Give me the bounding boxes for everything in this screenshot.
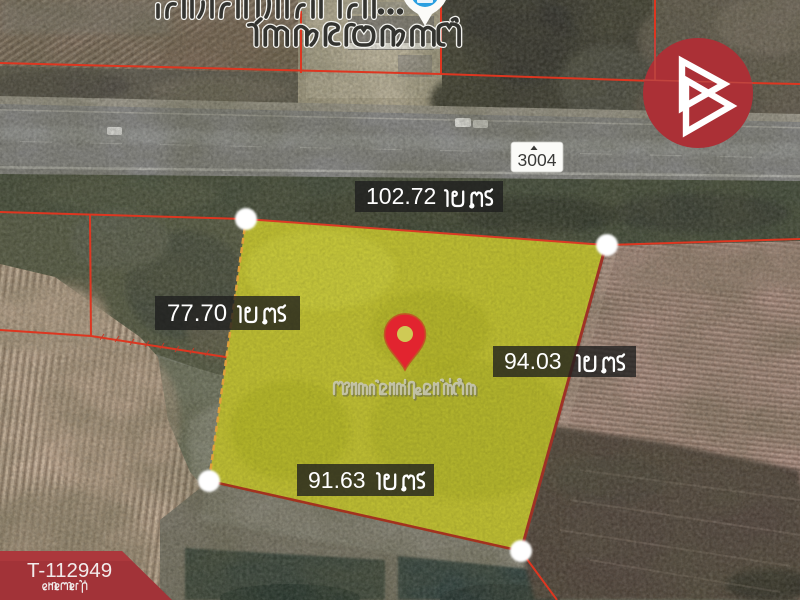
svg-text:3004: 3004 xyxy=(518,150,557,170)
svg-text:102.72: 102.72 xyxy=(366,183,436,209)
svg-text:94.03: 94.03 xyxy=(504,348,562,374)
svg-text:77.70: 77.70 xyxy=(167,300,227,327)
svg-text:91.63: 91.63 xyxy=(308,467,366,493)
svg-text:T-112949: T-112949 xyxy=(27,559,112,582)
